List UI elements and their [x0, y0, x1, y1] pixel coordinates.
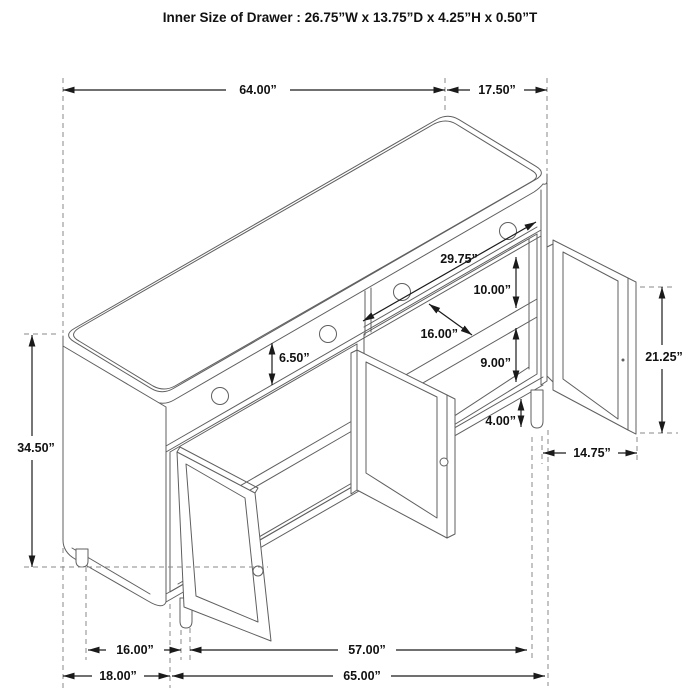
middle-door-knob	[440, 458, 448, 466]
dim-overall-height: 34.50”	[17, 335, 55, 567]
dim-door-width-label: 14.75”	[573, 446, 611, 460]
drawer-knob	[394, 284, 411, 301]
right-door-face	[553, 240, 628, 430]
dim-below-shelf-label: 9.00”	[480, 356, 511, 370]
dim-door-width: 14.75”	[543, 446, 637, 460]
technical-drawing-page: Inner Size of Drawer : 26.75”W x 13.75”D…	[0, 0, 700, 700]
middle-door-thickness-edge	[447, 395, 455, 538]
dim-leg-height: 4.00”	[485, 399, 521, 428]
dim-leg-height-label: 4.00”	[485, 414, 516, 428]
dim-drawer-front-height: 6.50”	[272, 343, 310, 385]
dim-above-shelf-label: 10.00”	[473, 283, 511, 297]
dim-shelf-depth-label: 16.00”	[420, 327, 458, 341]
dim-base-width: 65.00”	[172, 669, 545, 683]
dim-base-width-label: 65.00”	[343, 669, 381, 683]
dim-overall-depth: 17.50”	[447, 83, 547, 97]
front-right-leg	[531, 390, 543, 428]
right-door-open	[547, 240, 636, 434]
dim-overall-width-label: 64.00”	[239, 83, 277, 97]
cabinet-drawing	[63, 116, 636, 641]
dim-shelf-depth: 16.00”	[420, 304, 472, 341]
dim-base-depth-inner-label: 16.00”	[116, 643, 154, 657]
dim-base-depth: 18.00”	[63, 669, 170, 683]
middle-door-open	[351, 350, 455, 538]
dim-drawer-front-height-label: 6.50”	[279, 351, 310, 365]
sideboard-dimension-diagram: Inner Size of Drawer : 26.75”W x 13.75”D…	[0, 0, 700, 700]
right-corner-post	[541, 183, 547, 385]
dim-base-width-inner: 57.00”	[190, 643, 527, 657]
dim-opening-width-label: 29.75”	[440, 252, 478, 266]
middle-door-hinge-edge	[351, 350, 357, 494]
dim-base-depth-inner: 16.00”	[88, 643, 181, 657]
drawer-knob	[212, 388, 229, 405]
drawer-knob	[320, 326, 337, 343]
right-door-knob-dot	[622, 359, 625, 362]
right-door-hinge-marks	[547, 244, 553, 382]
middle-door-face	[357, 350, 447, 538]
drawer-knob	[500, 223, 517, 240]
dim-overall-depth-label: 17.50”	[478, 83, 516, 97]
dim-door-height: 21.25”	[645, 287, 683, 433]
drawing-title: Inner Size of Drawer : 26.75”W x 13.75”D…	[163, 10, 538, 25]
right-door-thickness-edge	[628, 278, 636, 434]
dim-base-depth-label: 18.00”	[99, 669, 137, 683]
dim-base-width-inner-label: 57.00”	[348, 643, 386, 657]
back-left-leg	[76, 549, 88, 567]
dim-overall-height-label: 34.50”	[17, 441, 55, 455]
dim-door-height-label: 21.25”	[645, 350, 683, 364]
dim-overall-width: 64.00”	[63, 83, 445, 97]
dim-below-shelf: 9.00”	[480, 328, 516, 382]
